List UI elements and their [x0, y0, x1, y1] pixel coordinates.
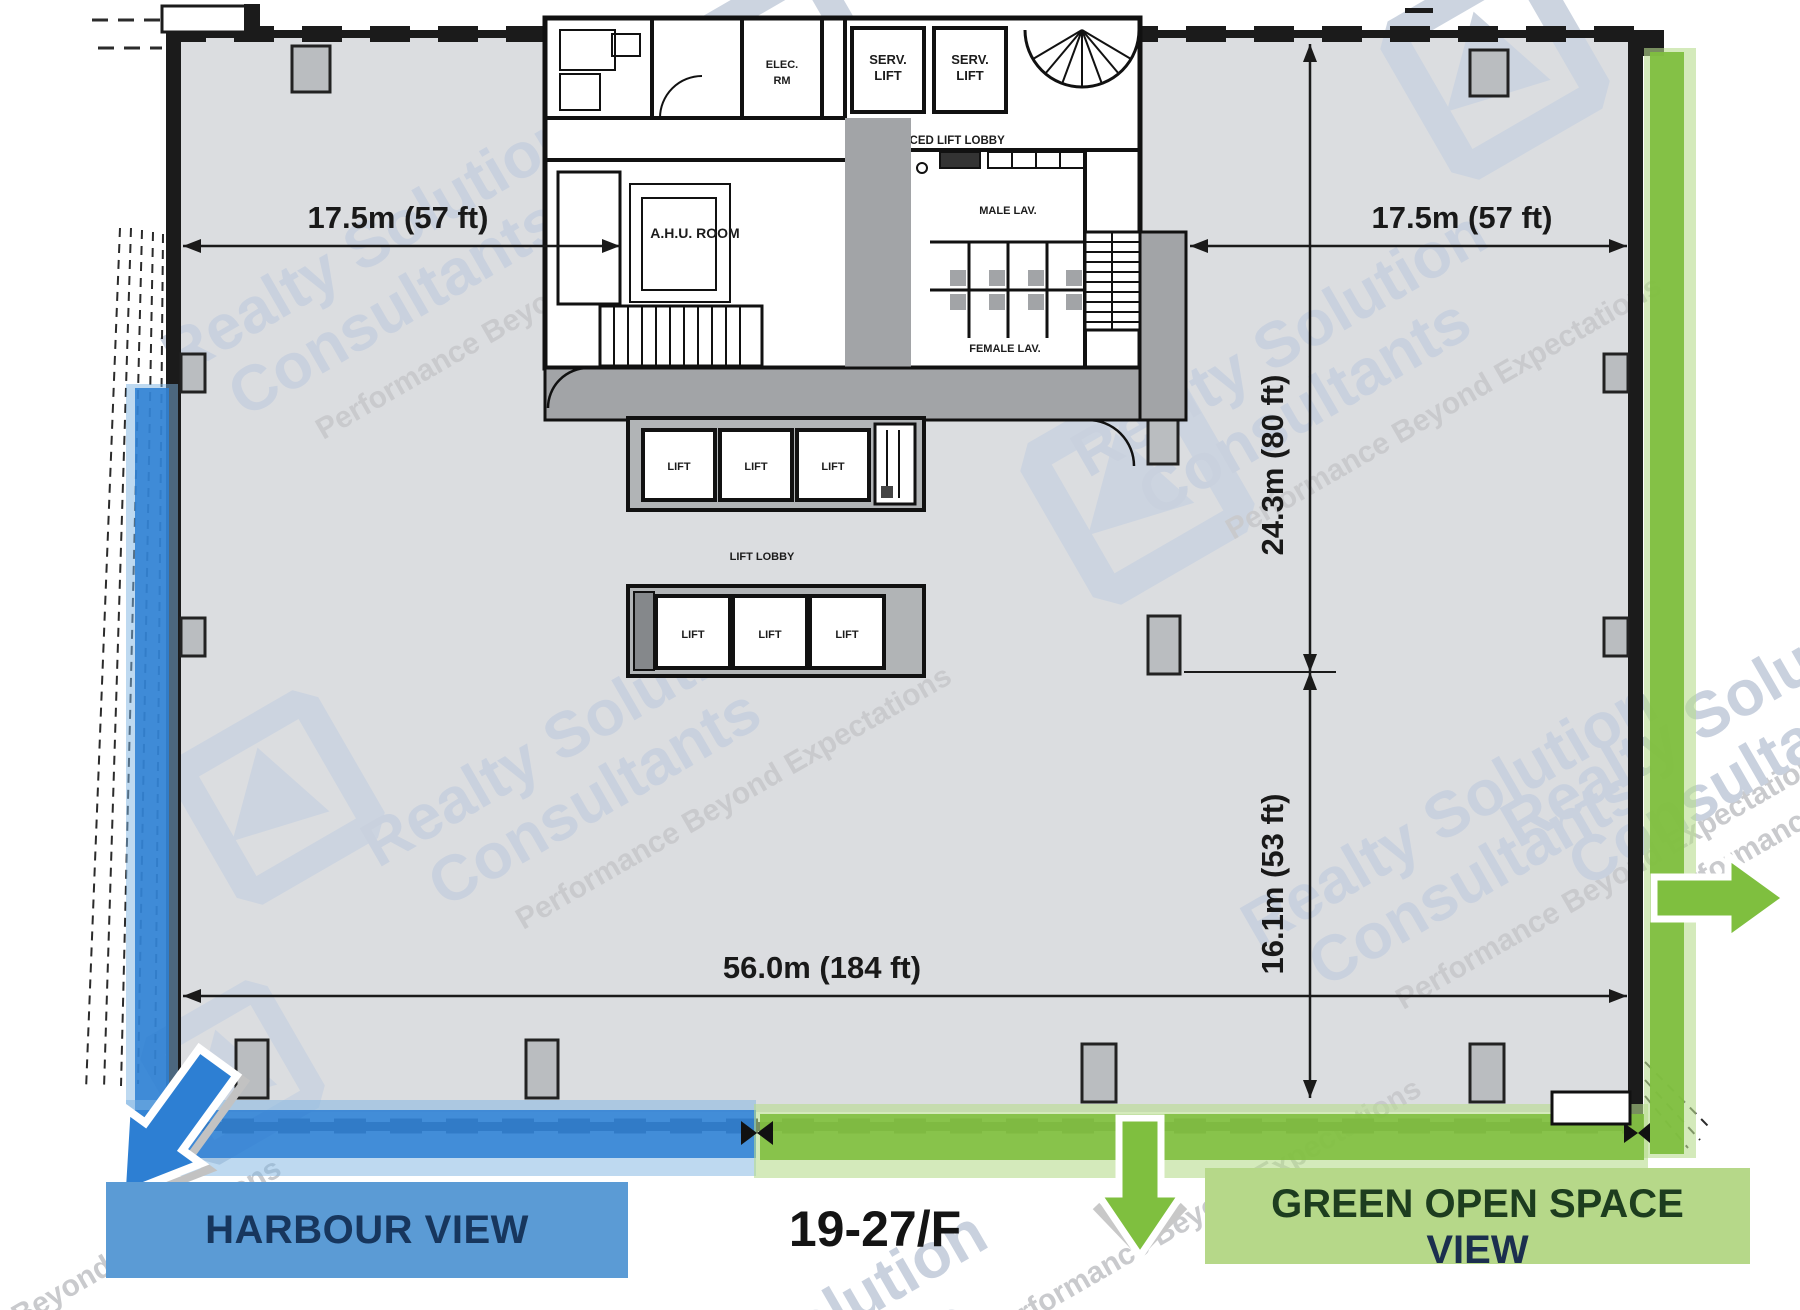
dimension-core-depth: 24.3m (80 ft)	[1255, 44, 1317, 672]
room-label-lift-lobby: LIFT LOBBY	[730, 551, 795, 563]
column	[181, 354, 205, 392]
dimension-right: 17.5m (57 ft)	[1190, 200, 1627, 253]
corridor	[545, 368, 1140, 420]
door-swing	[1088, 420, 1134, 466]
svg-text:LIFT: LIFT	[956, 68, 983, 83]
svg-text:LIFT: LIFT	[681, 629, 704, 641]
dimension-lower-depth: 16.1m (53 ft)	[1184, 672, 1336, 1098]
slab-notch	[1552, 1092, 1630, 1124]
balcony-protrusion	[162, 4, 260, 38]
service-core: ELEC. RM SERV. LIFT SERV. LIFT SERVICED …	[545, 18, 1186, 466]
column	[181, 618, 205, 656]
svg-text:17.5m (57 ft): 17.5m (57 ft)	[308, 200, 489, 235]
room-label-elec: ELEC.	[766, 59, 798, 71]
svg-text:24.3m (80 ft): 24.3m (80 ft)	[1255, 375, 1290, 556]
floor-plan-page: Realty Solution Consultants Performance …	[0, 0, 1800, 1310]
room-label-female-lav: FEMALE LAV.	[969, 343, 1041, 355]
lift-bank-upper: LIFT LIFT LIFT	[628, 418, 924, 510]
column	[1148, 420, 1178, 464]
room-label-elec: RM	[773, 75, 790, 87]
floor-plan-drawing: ELEC. RM SERV. LIFT SERV. LIFT SERVICED …	[0, 0, 1800, 1310]
column	[1470, 50, 1508, 96]
svg-text:LIFT: LIFT	[874, 68, 901, 83]
svg-text:16.1m (53 ft): 16.1m (53 ft)	[1255, 794, 1290, 975]
corridor	[1140, 232, 1186, 420]
lift-bank-lower: LIFT LIFT LIFT	[628, 586, 924, 676]
corridor	[845, 118, 911, 368]
room-label-male-lav: MALE LAV.	[979, 205, 1036, 217]
column	[1148, 616, 1180, 674]
service-lift-label: SERV.	[951, 52, 989, 67]
lavatory-fixtures	[940, 152, 1084, 168]
column	[292, 46, 330, 92]
svg-text:LIFT: LIFT	[758, 629, 781, 641]
column	[1082, 1044, 1116, 1102]
stair	[600, 306, 762, 366]
svg-text:17.5m (57 ft): 17.5m (57 ft)	[1372, 200, 1553, 235]
room-label-ahu: A.H.U. ROOM	[650, 225, 739, 241]
stair	[1085, 232, 1140, 330]
svg-text:56.0m (184 ft): 56.0m (184 ft)	[723, 950, 921, 985]
column	[1604, 618, 1628, 656]
svg-text:LIFT: LIFT	[821, 461, 844, 473]
column	[1604, 354, 1628, 392]
svg-text:LIFT: LIFT	[835, 629, 858, 641]
svg-text:LIFT: LIFT	[744, 461, 767, 473]
dimension-total-width: 56.0m (184 ft)	[183, 950, 1627, 1003]
svg-text:LIFT: LIFT	[667, 461, 690, 473]
column	[526, 1040, 558, 1098]
column	[1470, 1044, 1504, 1102]
service-lift-label: SERV.	[869, 52, 907, 67]
